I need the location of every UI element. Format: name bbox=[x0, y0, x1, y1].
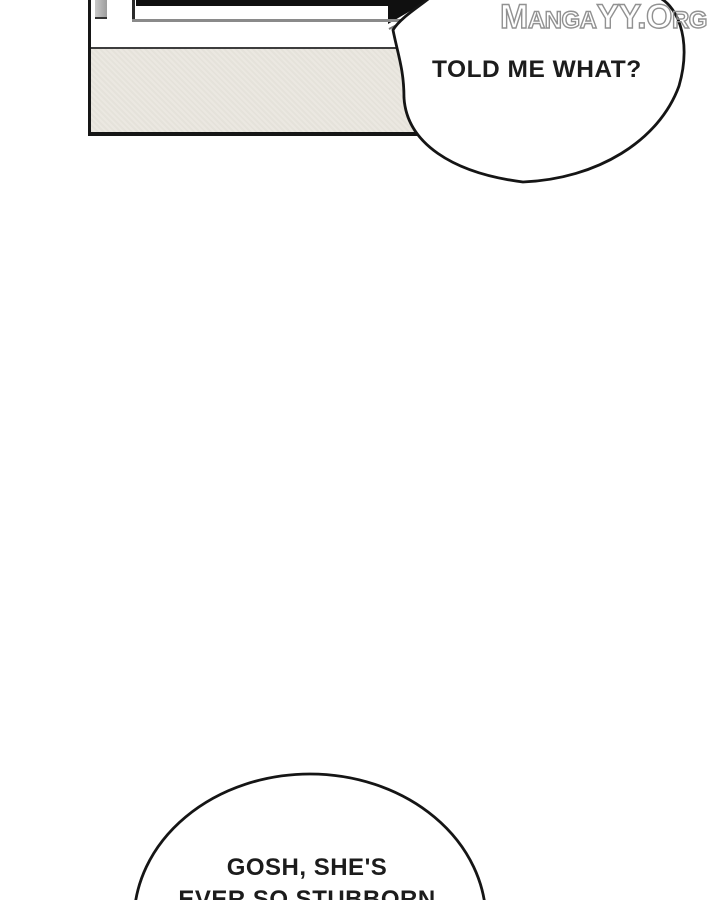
bottom-bubble-text-line1: GOSH, SHE'S bbox=[157, 854, 457, 882]
site-watermark: MangaYY.Org bbox=[500, 0, 720, 42]
manga-page: TOLD ME WHAT? GOSH, SHE'S EVER SO STUBBO… bbox=[0, 0, 720, 900]
speech-bubbles-layer bbox=[0, 0, 720, 900]
bottom-bubble-text-line2: EVER SO STUBBORN bbox=[157, 886, 457, 900]
top-bubble-text: TOLD ME WHAT? bbox=[432, 56, 632, 84]
